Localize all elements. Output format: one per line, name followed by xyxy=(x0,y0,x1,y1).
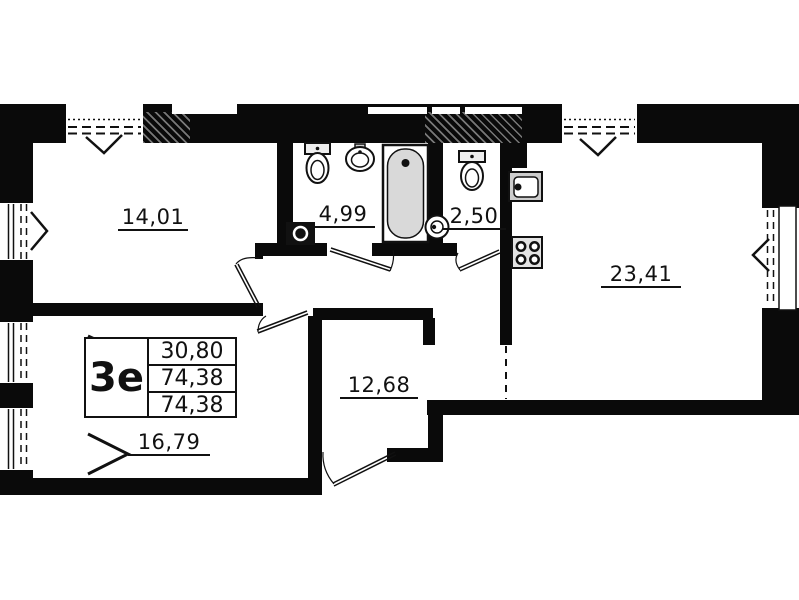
plan-graphics xyxy=(0,0,799,600)
door-swing-wc-icon xyxy=(456,250,500,271)
window-open-arrow-icon xyxy=(88,434,128,474)
toilet-icon xyxy=(305,143,330,183)
entrance-door-swing-icon xyxy=(323,452,396,486)
room-area-label-room2: 16,79 xyxy=(128,431,210,456)
floor-plan: 14,01 4,99 2,50 23,41 12,68 16,79 3е 30,… xyxy=(0,0,799,600)
door-swing-bathroom-icon xyxy=(330,248,394,271)
unit-type-label: 3е xyxy=(86,339,149,416)
stove-icon xyxy=(512,237,542,268)
window-top-kitchen xyxy=(564,120,635,156)
room-area-label-wc: 2,50 xyxy=(442,205,506,230)
window-top-room1 xyxy=(68,120,141,154)
window-open-arrow-icon xyxy=(753,239,769,271)
window-right-kitchen xyxy=(753,206,796,310)
bathtub-icon xyxy=(383,145,428,242)
door-swing-room2-icon xyxy=(257,311,308,333)
kitchen-sink-icon xyxy=(509,172,542,201)
door-swing-room1-icon xyxy=(235,258,260,307)
washbasin-icon xyxy=(346,144,374,171)
toilet-icon xyxy=(459,151,485,190)
room-area-label-hallway: 12,68 xyxy=(340,374,418,399)
window-left-room1 xyxy=(9,204,48,259)
window-left-room2-lower xyxy=(9,409,129,474)
window-open-arrow-icon xyxy=(31,212,47,250)
unit-area-value-1: 30,80 xyxy=(149,339,235,366)
unit-info-box: 3е 30,80 74,38 74,38 xyxy=(84,337,237,418)
unit-area-value-2: 74,38 xyxy=(149,366,235,393)
room-area-label-room1: 14,01 xyxy=(118,206,188,231)
room-area-label-kitchen: 23,41 xyxy=(601,263,681,288)
room-area-label-bathroom: 4,99 xyxy=(311,203,375,228)
unit-area-value-3: 74,38 xyxy=(149,393,235,418)
window-open-arrow-icon xyxy=(580,137,616,155)
window-open-arrow-icon xyxy=(86,135,122,153)
